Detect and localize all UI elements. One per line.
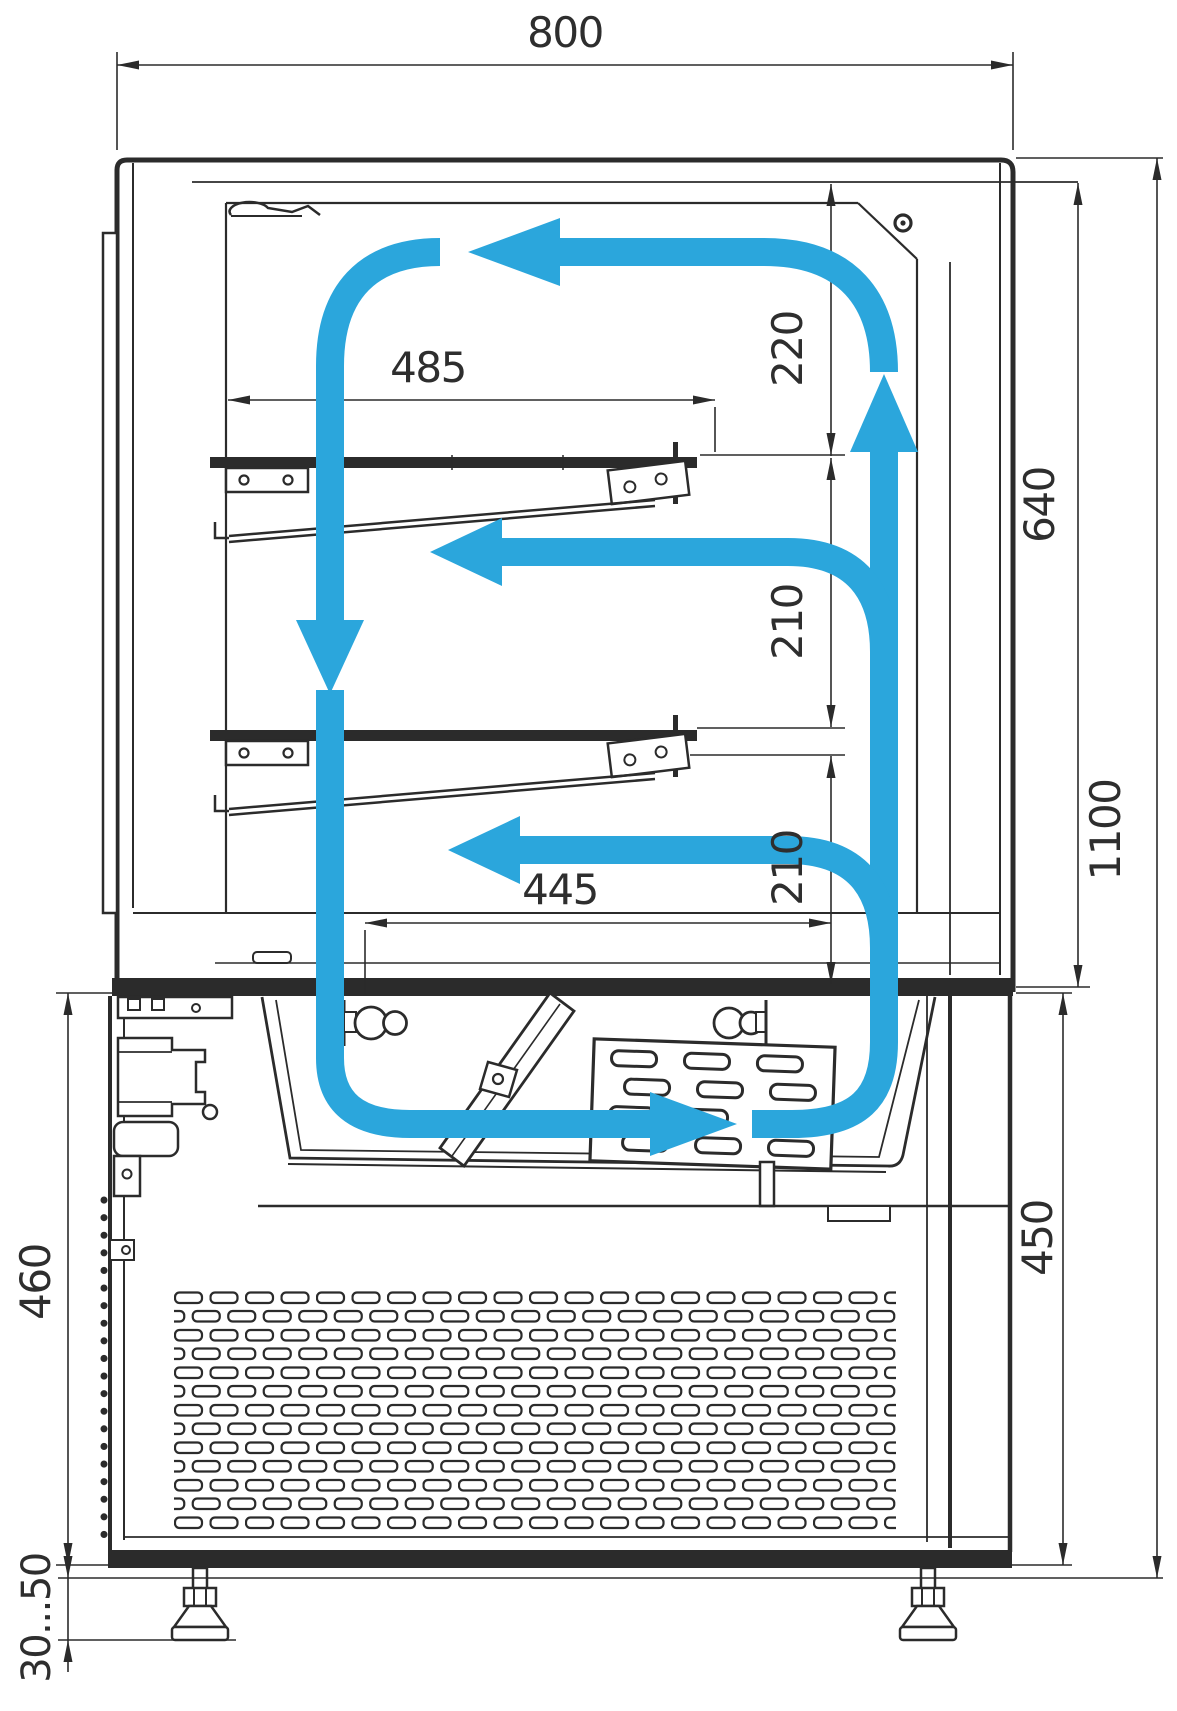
compressor-unit (110, 1038, 217, 1260)
airflow-mid-upper (502, 552, 884, 652)
fan-left (344, 1000, 407, 1046)
label-top-gap: 220 (763, 311, 812, 387)
display-case-section-drawing: 800 485 445 220 210 210 640 1100 450 460… (0, 0, 1177, 1711)
technical-drawing-page: 800 485 445 220 210 210 640 1100 450 460… (0, 0, 1177, 1711)
dim-base-height-left (56, 993, 112, 1672)
label-upper-shelf-depth: 485 (390, 343, 466, 392)
label-chamber-height: 640 (1015, 467, 1064, 543)
arrow-up-icon (850, 374, 918, 452)
lower-shelf (210, 715, 697, 815)
adjustable-foot-left (172, 1568, 228, 1640)
airflow-top-run (560, 252, 884, 372)
dim-base-height-right (1010, 993, 1072, 1565)
base-frame (108, 1550, 1012, 1568)
airflow-left-down (330, 252, 440, 620)
lamp-screw-icon (895, 215, 911, 231)
upper-shelf (210, 442, 697, 542)
fan-right (714, 1000, 766, 1044)
label-low-gap: 210 (763, 830, 812, 906)
label-mid-gap: 210 (763, 584, 812, 660)
dim-overall-width (117, 52, 1013, 150)
dim-upper-shelf-depth (228, 396, 715, 453)
label-base-height-left: 460 (11, 1244, 60, 1320)
arrow-down-icon (296, 620, 364, 694)
deflector-panel (440, 993, 574, 1166)
label-overall-height: 1100 (1081, 780, 1130, 881)
label-base-height-right: 450 (1013, 1200, 1062, 1276)
ventilation-grille (174, 1289, 896, 1534)
drain-pipe (760, 1162, 774, 1206)
arrow-left-low-icon (448, 816, 520, 884)
evaporator-cover (590, 1039, 835, 1169)
label-lower-deck-depth: 445 (522, 865, 598, 914)
arrow-left-top-icon (468, 218, 560, 286)
label-overall-width: 800 (527, 8, 603, 57)
dim-chamber-height (1016, 183, 1090, 987)
label-leg-adjustment: 30...50 (14, 1553, 60, 1682)
adjustable-foot-right (900, 1568, 956, 1640)
arrow-left-mid-icon (430, 518, 502, 586)
